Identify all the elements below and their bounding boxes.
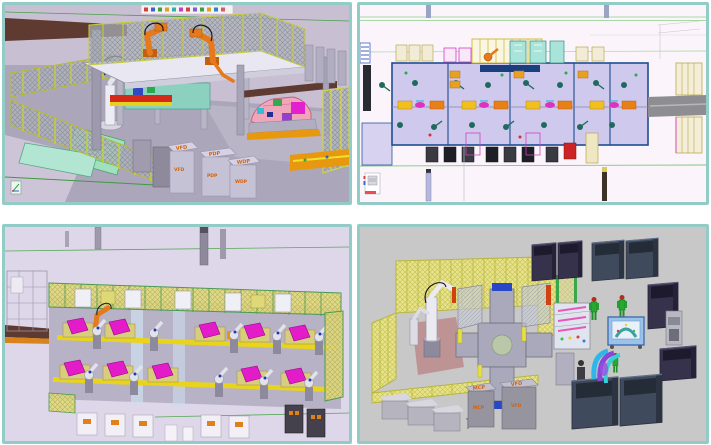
part-rack-cart — [608, 317, 644, 349]
viewport-top-left-weld-cell: VFD VFD PDP PDP WDP WDP — [2, 2, 352, 205]
floating-toolbar — [141, 5, 233, 14]
left-low-fence — [49, 393, 75, 413]
viewport-top-right-plan-view — [357, 2, 709, 205]
cabinet-label: VFD — [174, 167, 185, 173]
cabinet-label: PDP — [207, 173, 218, 179]
axis-triad-icon — [11, 181, 21, 194]
viewport-bottom-left-line-isometric — [2, 224, 352, 444]
cabinet-label: VFD — [511, 403, 522, 409]
mini-cabinet-icon — [364, 173, 381, 194]
factory-simulation-collage: VFD VFD PDP PDP WDP WDP — [0, 0, 711, 445]
cabinet-label: MCP — [473, 405, 485, 411]
viewport-bottom-right-turntable-cell: MCP MCP VFD VFD — [357, 224, 709, 444]
right-fence — [325, 311, 343, 401]
colorful-part-rack — [554, 303, 590, 349]
cabinet-label: WDP — [235, 179, 248, 185]
